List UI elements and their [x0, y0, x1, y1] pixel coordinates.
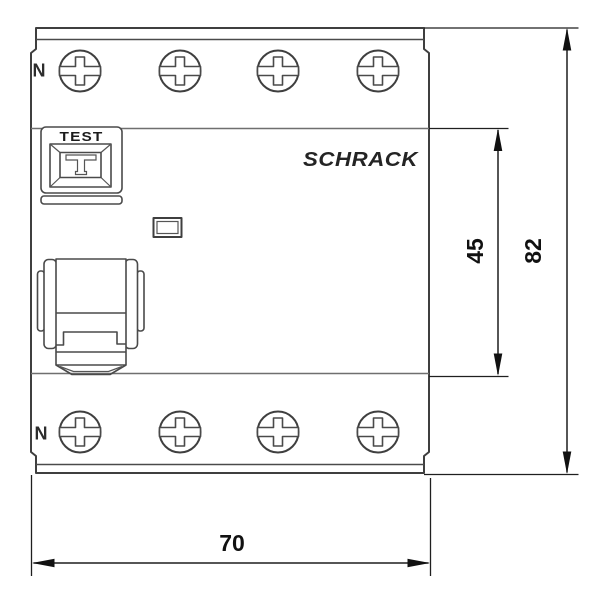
screw-terminal-icon — [258, 412, 299, 453]
dimension-value-70: 70 — [219, 530, 245, 556]
arrow-right-icon — [408, 559, 431, 568]
arrow-left-icon — [32, 559, 55, 568]
dimension-inner-height: 45 — [429, 129, 509, 377]
dimension-total-height: 82 — [424, 28, 579, 475]
lever-side-ear-right — [125, 260, 138, 349]
screw-terminal-icon — [60, 412, 101, 453]
rcd-dimension-diagram: N N TEST SCHRACK 45 — [0, 0, 600, 600]
arrow-up-icon — [494, 129, 503, 152]
dimension-total-width: 70 — [32, 475, 431, 576]
dimension-value-45: 45 — [462, 238, 488, 264]
arrow-down-icon — [563, 452, 572, 475]
lever-body — [56, 259, 126, 365]
indicator-inner-frame — [157, 222, 178, 234]
screw-terminal-icon — [358, 412, 399, 453]
neutral-label-top: N — [33, 61, 46, 81]
arrow-up-icon — [563, 28, 572, 51]
screw-terminal-icon — [358, 51, 399, 92]
test-button-label: TEST — [60, 129, 104, 144]
brand-logo: SCHRACK — [303, 149, 419, 171]
lever-side-ear-left — [44, 260, 57, 349]
device-body — [31, 28, 429, 473]
test-button: TEST — [41, 127, 122, 204]
technical-drawing: N N TEST SCHRACK 45 — [0, 0, 600, 600]
dimension-value-82: 82 — [520, 238, 546, 264]
screw-terminal-icon — [160, 51, 201, 92]
arrow-down-icon — [494, 354, 503, 377]
device-outline — [31, 28, 429, 473]
screw-terminal-icon — [160, 412, 201, 453]
status-indicator-window — [154, 218, 182, 237]
test-button-plate-strip — [41, 196, 122, 204]
neutral-label-bottom: N — [35, 424, 48, 444]
screw-terminal-icon — [258, 51, 299, 92]
screw-terminal-icon — [60, 51, 101, 92]
